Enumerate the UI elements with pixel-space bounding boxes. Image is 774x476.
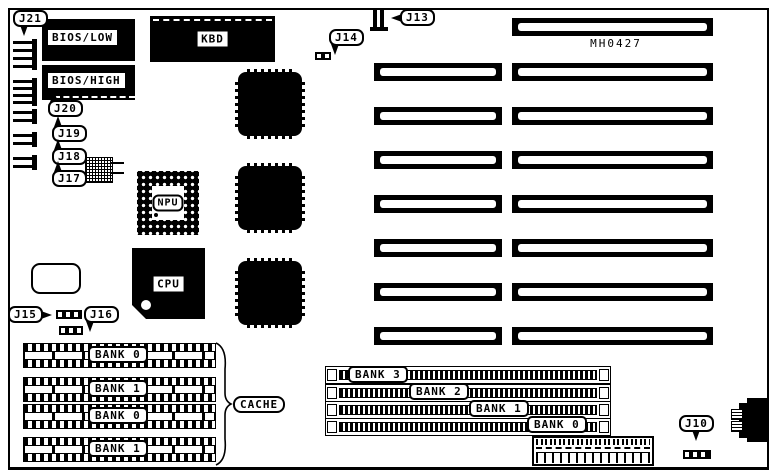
pin [13,80,33,83]
pin [13,49,33,52]
pin-strip [247,69,293,72]
jumper-label-j15-text: J15 [14,308,37,321]
pin [13,41,33,44]
pin [13,65,33,68]
socket-clip [599,369,609,381]
qfp-chip [238,166,302,230]
pin-header-bar [32,155,37,170]
callout-tail-icon [41,311,52,319]
pin-strip [235,81,238,127]
jumper-label-j20-text: J20 [54,102,77,115]
slot-opening [518,156,707,164]
cache-bank-label: BANK 1 [88,380,148,397]
oscillator-pin [111,162,124,164]
qfp-chip [238,72,302,136]
cache-group-brace [214,341,234,467]
slot-opening [380,156,496,164]
socket-contacts [339,405,597,415]
callout-tail-icon [391,14,402,22]
jumper-j20-pins [13,80,37,107]
callout-tail-icon [54,161,62,172]
socket-clip [599,387,609,399]
connector-dash-line [536,447,650,449]
jumper-caps [317,54,329,58]
cpu-label: CPU [153,276,184,291]
part-number: MH0427 [556,37,676,50]
cache-bank-label: BANK 0 [88,407,148,424]
jumper-j14-block [315,52,331,60]
qfp-chip [238,261,302,325]
isa-slot [512,283,713,301]
kbd-chip: KBD [150,16,275,62]
slot-opening [380,200,496,208]
pin [13,57,33,60]
jumper-label-j16-text: J16 [90,308,113,321]
isa-slot [512,18,713,36]
jumper-label-j16: J16 [84,306,119,323]
socket-clip [327,404,337,416]
isa-slot-extension [374,151,502,169]
pin1-marker-icon [154,213,158,217]
npu-socket: NPU [137,171,199,235]
simm-bank-label: BANK 1 [469,400,529,417]
simm-bank-label: BANK 0 [527,416,587,433]
pin-header-bar [32,109,37,124]
callout-tail-icon [692,430,700,441]
isa-slot-extension [374,63,502,81]
socket-clip [327,421,337,433]
pin [13,94,33,97]
cache-bank-label: BANK 1 [88,440,148,457]
jumper-caps [61,328,81,333]
callout-tail-icon [331,44,339,55]
connector-sockets [536,452,650,463]
slot-opening [518,112,707,120]
socket-dash-line [153,19,272,21]
jumper-label-j21: J21 [13,10,48,27]
jumper-label-j15: J15 [8,306,43,323]
isa-slot-extension [374,239,502,257]
pin1-marker-icon [141,300,151,310]
jumper-label-j14-text: J14 [335,31,358,44]
jumper-label-j10: J10 [679,415,714,432]
jumper-label-j10-text: J10 [685,417,708,430]
pin-strip [235,175,238,221]
jumper-label-j21-text: J21 [19,12,42,25]
pin [13,165,33,168]
isa-slot [512,63,713,81]
pin [13,111,33,114]
pin-strip [247,136,293,139]
jumper-j19-pins [13,111,37,123]
isa-slot [512,151,713,169]
simm-bank-label: BANK 3 [348,366,408,383]
crystal [31,263,81,294]
pin-strip [247,325,293,328]
slot-opening [380,244,496,252]
pin-strip [302,270,305,316]
pin [380,9,384,27]
cpu-chip: CPU [132,248,205,319]
callout-tail-icon [20,25,28,36]
isa-slot [512,195,713,213]
jumper-label-j17: J17 [52,170,87,187]
isa-slot [512,327,713,345]
pin-header-bar [32,39,37,70]
pin-header-bar [32,132,37,147]
pin [13,134,33,137]
jumper-j18-pins [13,134,37,146]
slot-opening [518,288,707,296]
slot-opening [380,288,496,296]
simm-bank-label: BANK 2 [409,383,469,400]
npu-label: NPU [152,195,183,212]
jumper-caps [58,312,80,317]
pin [13,101,33,104]
pin-strip [247,258,293,261]
jumper-label-j13-text: J13 [406,11,429,24]
callout-tail-icon [54,116,62,127]
isa-slot [512,239,713,257]
pin-strip [235,270,238,316]
jumper-j16-block [59,326,83,335]
pin-strip [302,81,305,127]
slot-opening [518,68,707,76]
motherboard-diagram: J21 J20 J19 J18 [0,0,774,476]
jumper-j10-block [683,450,711,459]
connector-tab [731,409,743,420]
bios-low-label: BIOS/LOW [48,30,117,45]
pin [373,9,377,27]
jumper-label-j13: J13 [400,9,435,26]
connector-pins [536,439,650,445]
isa-slot-extension [374,195,502,213]
jumper-j15-block [56,310,82,319]
cache-label: CACHE [233,396,285,413]
isa-slot-extension [374,107,502,125]
jumper-label-j20: J20 [48,100,83,117]
pin [13,87,33,90]
socket-clip [599,421,609,433]
bios-low-chip: BIOS/LOW [42,19,135,61]
socket-clip [327,369,337,381]
slot-opening [380,112,496,120]
pin-strip [247,163,293,166]
socket-dash-line [54,96,135,98]
cache-bank-label: BANK 0 [88,346,148,363]
slot-opening [380,68,496,76]
jumper-label-j14: J14 [329,29,364,46]
slot-opening [518,200,707,208]
pin-header-bar [370,27,388,31]
jumper-j17-pins [13,157,37,169]
slot-opening [518,23,707,31]
kbd-label: KBD [197,32,228,47]
pin-strip [302,175,305,221]
pin [13,142,33,145]
slot-opening [380,332,496,340]
pin [13,119,33,122]
connector-tab [731,421,743,432]
jumper-j13-pins [370,9,388,32]
power-connector [532,436,654,466]
isa-slot [512,107,713,125]
jumper-label-j17-text: J17 [58,172,81,185]
pin-strip [247,230,293,233]
jumper-j21-pins [13,41,37,71]
jumper-caps [685,452,709,457]
bios-high-label: BIOS/HIGH [48,73,125,88]
slot-opening [518,244,707,252]
isa-slot-extension [374,327,502,345]
oscillator-pin [111,172,124,174]
pin-header-bar [32,78,37,106]
slot-opening [518,332,707,340]
pin [13,157,33,160]
callout-tail-icon [86,321,94,332]
socket-clip [327,387,337,399]
oscillator [85,157,113,183]
callout-tail-icon [54,139,62,150]
isa-slot-extension [374,283,502,301]
socket-clip [599,404,609,416]
callout-tail-icon [50,91,58,102]
